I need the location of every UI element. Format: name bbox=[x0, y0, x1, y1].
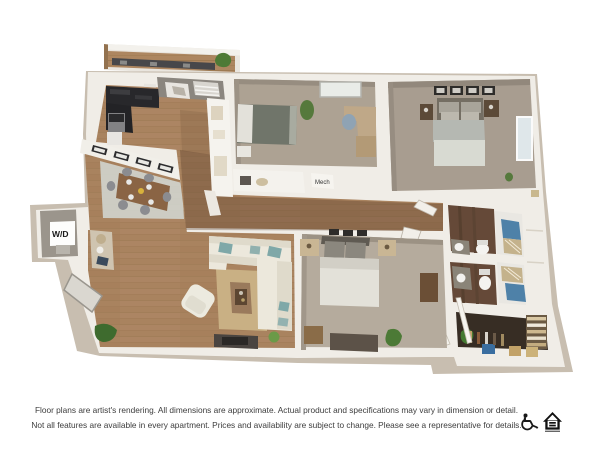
svg-text:Mech: Mech bbox=[315, 180, 330, 186]
svg-text:W/D: W/D bbox=[52, 229, 69, 239]
